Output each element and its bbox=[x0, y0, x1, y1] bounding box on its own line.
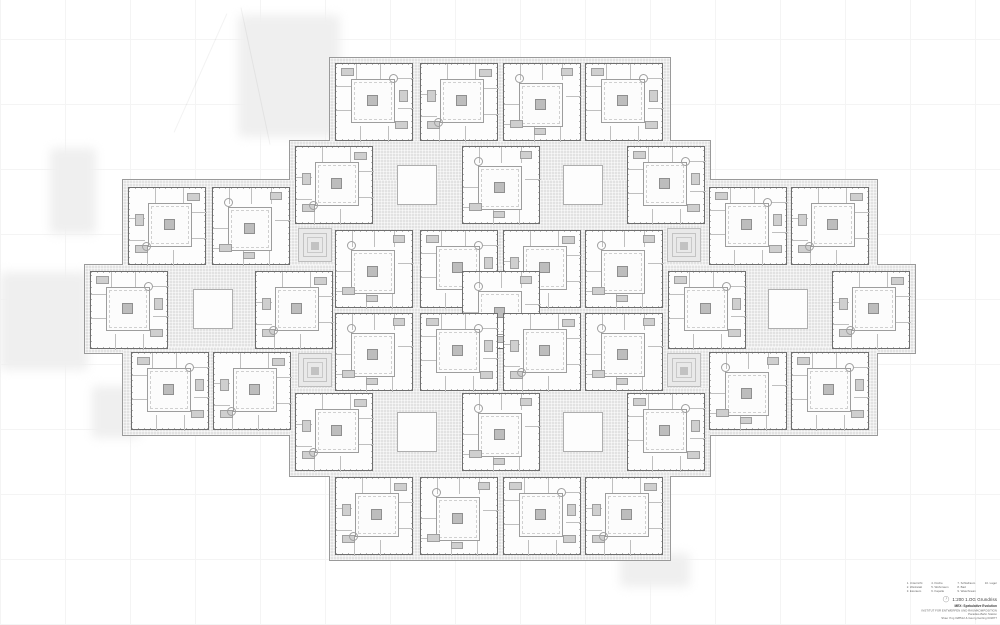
furniture-item bbox=[633, 151, 646, 159]
furniture-item bbox=[426, 318, 439, 326]
central-core bbox=[494, 182, 505, 193]
interior-wall bbox=[398, 346, 414, 347]
interior-wall bbox=[421, 360, 437, 361]
interior-wall bbox=[269, 250, 270, 266]
room-legend: 1. Unterricht2. Werkstatt3. Essraum4. Kü… bbox=[739, 582, 997, 593]
interior-wall bbox=[586, 271, 602, 272]
interior-wall bbox=[132, 399, 148, 400]
apartment-module bbox=[585, 313, 663, 391]
furniture-item bbox=[643, 235, 655, 243]
furniture-item bbox=[395, 121, 408, 129]
interior-wall bbox=[730, 188, 731, 204]
interior-wall bbox=[887, 272, 888, 288]
interior-wall bbox=[844, 415, 845, 431]
furniture-item bbox=[592, 287, 605, 295]
light-well-void bbox=[563, 412, 603, 452]
interior-wall bbox=[296, 446, 312, 447]
interior-wall bbox=[792, 240, 808, 241]
table-icon bbox=[681, 404, 690, 413]
apartment-module bbox=[668, 271, 746, 349]
furniture-item bbox=[469, 203, 482, 211]
interior-wall bbox=[558, 231, 559, 247]
furniture-item bbox=[342, 370, 355, 378]
interior-wall bbox=[504, 524, 520, 525]
interior-wall bbox=[91, 318, 107, 319]
table-icon bbox=[517, 368, 526, 377]
interior-wall bbox=[624, 231, 625, 247]
furniture-item bbox=[354, 399, 367, 407]
light-well-void bbox=[397, 165, 437, 205]
stair-core bbox=[298, 228, 332, 262]
interior-wall bbox=[392, 376, 393, 392]
table-icon bbox=[597, 324, 606, 333]
interior-wall bbox=[586, 86, 602, 87]
interior-wall bbox=[194, 367, 210, 368]
furniture-item bbox=[891, 277, 904, 285]
interior-wall bbox=[642, 293, 643, 309]
stair-core bbox=[298, 353, 332, 387]
interior-wall bbox=[628, 169, 644, 170]
furniture-item bbox=[740, 417, 752, 424]
interior-wall bbox=[483, 358, 499, 359]
interior-wall bbox=[877, 334, 878, 350]
interior-wall bbox=[818, 188, 819, 204]
furniture-item bbox=[616, 295, 628, 302]
interior-wall bbox=[525, 179, 541, 180]
table-icon bbox=[639, 74, 648, 83]
interior-wall bbox=[115, 334, 116, 350]
furniture-item bbox=[354, 152, 367, 160]
interior-wall bbox=[350, 147, 351, 163]
furniture-item bbox=[451, 542, 463, 549]
apartment-module bbox=[420, 63, 498, 141]
furniture-item bbox=[633, 398, 646, 406]
interior-wall bbox=[854, 397, 870, 398]
furniture-item bbox=[427, 534, 440, 542]
central-core bbox=[535, 99, 546, 110]
apartment-module bbox=[585, 477, 663, 555]
interior-wall bbox=[628, 416, 644, 417]
interior-wall bbox=[548, 478, 549, 494]
interior-wall bbox=[680, 456, 681, 472]
furniture-item bbox=[342, 287, 355, 295]
furniture-item bbox=[645, 121, 658, 129]
interior-wall bbox=[648, 263, 664, 264]
table-icon bbox=[434, 118, 443, 127]
legend-item: 6. Kapelle bbox=[931, 590, 948, 593]
interior-wall bbox=[504, 104, 520, 105]
light-well-void bbox=[563, 165, 603, 205]
interior-wall bbox=[358, 418, 374, 419]
table-icon bbox=[597, 241, 606, 250]
table-icon bbox=[347, 324, 356, 333]
interior-wall bbox=[390, 478, 391, 494]
interior-wall bbox=[191, 212, 207, 213]
context-shadow bbox=[0, 272, 88, 370]
interior-wall bbox=[336, 530, 352, 531]
interior-wall bbox=[606, 64, 607, 80]
interior-wall bbox=[566, 281, 582, 282]
table-icon bbox=[474, 324, 483, 333]
apartment-module bbox=[335, 477, 413, 555]
interior-wall bbox=[176, 353, 177, 369]
furniture-item bbox=[592, 504, 601, 516]
context-shadow bbox=[238, 15, 340, 137]
furniture-item bbox=[243, 252, 255, 259]
interior-wall bbox=[183, 188, 184, 204]
table-icon bbox=[142, 242, 151, 251]
furniture-item bbox=[715, 192, 728, 200]
furniture-item bbox=[687, 451, 700, 459]
apartment-module bbox=[335, 63, 413, 141]
interior-wall bbox=[648, 346, 664, 347]
interior-wall bbox=[530, 231, 531, 247]
furniture-item bbox=[687, 204, 700, 212]
furniture-item bbox=[691, 173, 700, 185]
interior-wall bbox=[504, 366, 520, 367]
interior-wall bbox=[710, 393, 726, 394]
furniture-item bbox=[562, 319, 575, 327]
interior-wall bbox=[854, 367, 870, 368]
apartment-module bbox=[791, 187, 869, 265]
interior-wall bbox=[276, 377, 292, 378]
central-core bbox=[452, 345, 463, 356]
furniture-item bbox=[562, 236, 575, 244]
central-core bbox=[868, 303, 879, 314]
interior-wall bbox=[648, 528, 664, 529]
furniture-item bbox=[591, 68, 604, 76]
central-core bbox=[539, 262, 550, 273]
interior-wall bbox=[556, 540, 557, 556]
interior-wall bbox=[648, 394, 649, 410]
interior-wall bbox=[772, 232, 788, 233]
furniture-item bbox=[314, 277, 327, 285]
interior-wall bbox=[380, 540, 381, 556]
interior-wall bbox=[421, 277, 437, 278]
interior-wall bbox=[586, 110, 602, 111]
interior-wall bbox=[624, 314, 625, 330]
interior-wall bbox=[447, 64, 448, 80]
central-core bbox=[617, 266, 628, 277]
table-icon bbox=[557, 488, 566, 497]
apartment-module bbox=[503, 477, 581, 555]
furniture-item bbox=[393, 318, 405, 326]
interior-wall bbox=[721, 334, 722, 350]
interior-wall bbox=[610, 126, 611, 142]
interior-wall bbox=[690, 408, 706, 409]
central-core bbox=[617, 349, 628, 360]
interior-wall bbox=[672, 394, 673, 410]
interior-wall bbox=[501, 272, 502, 288]
interior-wall bbox=[322, 394, 323, 410]
interior-wall bbox=[336, 354, 352, 355]
interior-wall bbox=[640, 478, 641, 494]
interior-wall bbox=[143, 334, 144, 350]
interior-wall bbox=[566, 255, 582, 256]
furniture-item bbox=[850, 193, 863, 201]
stair-center bbox=[680, 242, 688, 250]
apartment-module bbox=[503, 63, 581, 141]
interior-wall bbox=[669, 294, 685, 295]
furniture-item bbox=[520, 151, 532, 159]
sheet-scale-title: 1:200 1.OG Grundriss bbox=[952, 597, 997, 602]
title-block: 1. Unterricht2. Werkstatt3. Essraum4. Kü… bbox=[739, 582, 997, 620]
central-core bbox=[827, 219, 838, 230]
table-icon bbox=[763, 198, 772, 207]
interior-wall bbox=[129, 240, 145, 241]
stair-center bbox=[311, 367, 319, 375]
furniture-item bbox=[427, 90, 436, 102]
central-core bbox=[371, 509, 382, 520]
interior-wall bbox=[854, 212, 870, 213]
furniture-item bbox=[773, 214, 782, 226]
interior-wall bbox=[240, 353, 241, 369]
central-core bbox=[823, 384, 834, 395]
furniture-item bbox=[592, 370, 605, 378]
interior-wall bbox=[465, 314, 466, 330]
furniture-item bbox=[851, 410, 864, 418]
interior-wall bbox=[812, 353, 813, 369]
furniture-item bbox=[195, 379, 204, 391]
apartment-module bbox=[791, 352, 869, 430]
central-core bbox=[700, 303, 711, 314]
central-core bbox=[539, 345, 550, 356]
interior-wall bbox=[251, 188, 252, 204]
apartment-module bbox=[335, 230, 413, 308]
interior-wall bbox=[318, 322, 334, 323]
furniture-item bbox=[510, 257, 519, 269]
central-core bbox=[367, 349, 378, 360]
furniture-item bbox=[154, 298, 163, 310]
furniture-item bbox=[479, 69, 492, 77]
interior-wall bbox=[566, 522, 582, 523]
interior-wall bbox=[153, 316, 169, 317]
furniture-item bbox=[732, 298, 741, 310]
furniture-item bbox=[137, 357, 150, 365]
table-icon bbox=[722, 282, 731, 291]
interior-wall bbox=[628, 440, 644, 441]
interior-wall bbox=[548, 376, 549, 392]
interior-wall bbox=[374, 314, 375, 330]
stair-center bbox=[311, 242, 319, 250]
interior-wall bbox=[296, 199, 312, 200]
floor-plan-sheet: 1. Unterricht2. Werkstatt3. Essraum4. Kü… bbox=[0, 0, 1000, 625]
apartment-module bbox=[128, 187, 206, 265]
legend-item: 9. Waschraum bbox=[957, 590, 976, 593]
interior-wall bbox=[358, 197, 374, 198]
furniture-item bbox=[839, 298, 848, 310]
interior-wall bbox=[463, 187, 479, 188]
apartment-module bbox=[131, 352, 209, 430]
furniture-item bbox=[426, 235, 439, 243]
furniture-item bbox=[366, 378, 378, 385]
interior-wall bbox=[690, 438, 706, 439]
interior-wall bbox=[111, 272, 112, 288]
interior-wall bbox=[459, 478, 460, 494]
interior-wall bbox=[558, 314, 559, 330]
interior-wall bbox=[754, 188, 755, 204]
interior-wall bbox=[690, 191, 706, 192]
apartment-module bbox=[627, 146, 705, 224]
furniture-item bbox=[510, 120, 523, 128]
interior-wall bbox=[340, 209, 341, 225]
furniture-item bbox=[616, 378, 628, 385]
central-core bbox=[617, 95, 628, 106]
table-icon bbox=[845, 363, 854, 372]
interior-wall bbox=[542, 64, 543, 80]
table-icon bbox=[432, 488, 441, 497]
interior-wall bbox=[473, 376, 474, 392]
interior-wall bbox=[792, 375, 808, 376]
interior-wall bbox=[374, 231, 375, 247]
interior-wall bbox=[586, 530, 602, 531]
interior-wall bbox=[895, 296, 911, 297]
central-core bbox=[122, 303, 133, 314]
interior-wall bbox=[421, 253, 437, 254]
interior-wall bbox=[710, 210, 726, 211]
furniture-item bbox=[567, 504, 576, 516]
interior-wall bbox=[465, 126, 466, 142]
apartment-module bbox=[420, 477, 498, 555]
interior-wall bbox=[477, 540, 478, 556]
interior-wall bbox=[336, 86, 352, 87]
interior-wall bbox=[524, 478, 525, 494]
central-core bbox=[367, 95, 378, 106]
apartment-module bbox=[255, 271, 333, 349]
interior-wall bbox=[398, 108, 414, 109]
interior-wall bbox=[135, 272, 136, 288]
interior-wall bbox=[748, 353, 749, 369]
table-icon bbox=[309, 448, 318, 457]
north-arrow-icon bbox=[943, 596, 949, 602]
interior-wall bbox=[360, 126, 361, 142]
interior-wall bbox=[689, 272, 690, 288]
furniture-item bbox=[484, 340, 493, 352]
apartment-module bbox=[213, 352, 291, 430]
interior-wall bbox=[672, 147, 673, 163]
table-icon bbox=[144, 282, 153, 291]
context-shadow bbox=[50, 148, 96, 234]
interior-wall bbox=[501, 394, 502, 410]
furniture-item bbox=[798, 214, 807, 226]
central-core bbox=[659, 425, 670, 436]
interior-wall bbox=[380, 64, 381, 80]
interior-wall bbox=[648, 108, 664, 109]
central-core bbox=[452, 513, 463, 524]
stair-core bbox=[667, 228, 701, 262]
interior-wall bbox=[152, 353, 153, 369]
apartment-module bbox=[212, 187, 290, 265]
interior-wall bbox=[398, 502, 414, 503]
furniture-item bbox=[219, 244, 232, 252]
interior-wall bbox=[669, 318, 685, 319]
furniture-item bbox=[649, 90, 658, 102]
interior-wall bbox=[358, 171, 374, 172]
interior-wall bbox=[191, 238, 207, 239]
apartment-module bbox=[462, 146, 540, 224]
interior-wall bbox=[268, 353, 269, 369]
furniture-item bbox=[302, 420, 311, 432]
interior-wall bbox=[734, 250, 735, 266]
table-icon bbox=[309, 201, 318, 210]
furniture-item bbox=[480, 371, 493, 379]
table-icon bbox=[269, 326, 278, 335]
interior-wall bbox=[421, 116, 437, 117]
interior-wall bbox=[184, 415, 185, 431]
interior-wall bbox=[336, 271, 352, 272]
interior-wall bbox=[630, 64, 631, 80]
interior-wall bbox=[358, 444, 374, 445]
furniture-item bbox=[509, 482, 522, 490]
apartment-module bbox=[585, 230, 663, 308]
interior-wall bbox=[256, 324, 272, 325]
interior-wall bbox=[566, 364, 582, 365]
interior-wall bbox=[560, 126, 561, 142]
interior-wall bbox=[336, 110, 352, 111]
interior-wall bbox=[586, 354, 602, 355]
legend-item: 3. Essraum bbox=[907, 590, 923, 593]
interior-wall bbox=[548, 293, 549, 309]
legend-column: 10. Lager bbox=[985, 582, 997, 593]
apartment-module bbox=[627, 393, 705, 471]
interior-wall bbox=[895, 322, 911, 323]
table-icon bbox=[515, 74, 524, 83]
apartment-module bbox=[295, 146, 373, 224]
central-core bbox=[163, 384, 174, 395]
interior-wall bbox=[846, 188, 847, 204]
furniture-item bbox=[493, 211, 505, 218]
interior-wall bbox=[566, 96, 582, 97]
interior-wall bbox=[155, 188, 156, 204]
interior-wall bbox=[465, 231, 466, 247]
apartment-module bbox=[709, 187, 787, 265]
stair-core bbox=[667, 353, 701, 387]
apartment-module bbox=[462, 393, 540, 471]
furniture-item bbox=[644, 483, 657, 491]
furniture-item bbox=[716, 409, 729, 417]
table-icon bbox=[805, 242, 814, 251]
apartment-module bbox=[335, 313, 413, 391]
furniture-item bbox=[493, 458, 505, 465]
interior-wall bbox=[310, 272, 311, 288]
interior-wall bbox=[648, 502, 664, 503]
interior-wall bbox=[816, 415, 817, 431]
table-icon bbox=[347, 241, 356, 250]
interior-wall bbox=[421, 518, 437, 519]
legend-column: 7. Schlafraum8. Bad9. Waschraum bbox=[957, 582, 976, 593]
furniture-item bbox=[187, 193, 200, 201]
interior-wall bbox=[350, 394, 351, 410]
interior-wall bbox=[766, 415, 767, 431]
furniture-item bbox=[674, 276, 687, 284]
table-icon bbox=[474, 282, 483, 291]
table-icon bbox=[846, 326, 855, 335]
interior-wall bbox=[710, 234, 726, 235]
interior-wall bbox=[483, 245, 499, 246]
interior-wall bbox=[475, 64, 476, 80]
furniture-item bbox=[534, 128, 546, 135]
table-icon bbox=[349, 532, 358, 541]
furniture-item bbox=[484, 257, 493, 269]
interior-wall bbox=[525, 426, 541, 427]
furniture-item bbox=[561, 68, 573, 76]
interior-wall bbox=[398, 78, 414, 79]
furniture-item bbox=[797, 357, 810, 365]
interior-wall bbox=[356, 64, 357, 80]
furniture-item bbox=[855, 379, 864, 391]
authors-line: Shao Ying 028512 & Georg Gerling 031877 bbox=[739, 616, 997, 620]
central-core bbox=[164, 219, 175, 230]
